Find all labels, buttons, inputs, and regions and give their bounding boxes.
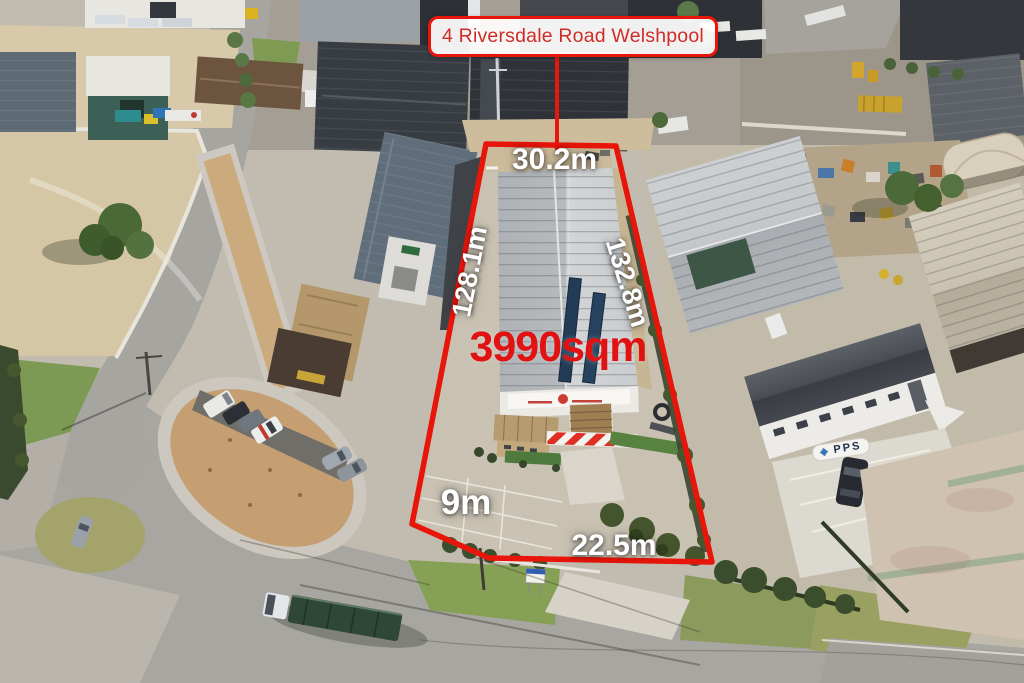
dimension-bottom-left: 9m [428, 485, 504, 520]
aerial-photo: 4 Riversdale Road Welshpool ◈ PPS 30.2m … [0, 0, 1024, 683]
area-label: 3990sqm [437, 326, 679, 369]
dimension-bottom: 22.5m [536, 531, 692, 561]
address-label: 4 Riversdale Road Welshpool [428, 16, 718, 57]
dimension-top: 30.2m [497, 145, 612, 175]
